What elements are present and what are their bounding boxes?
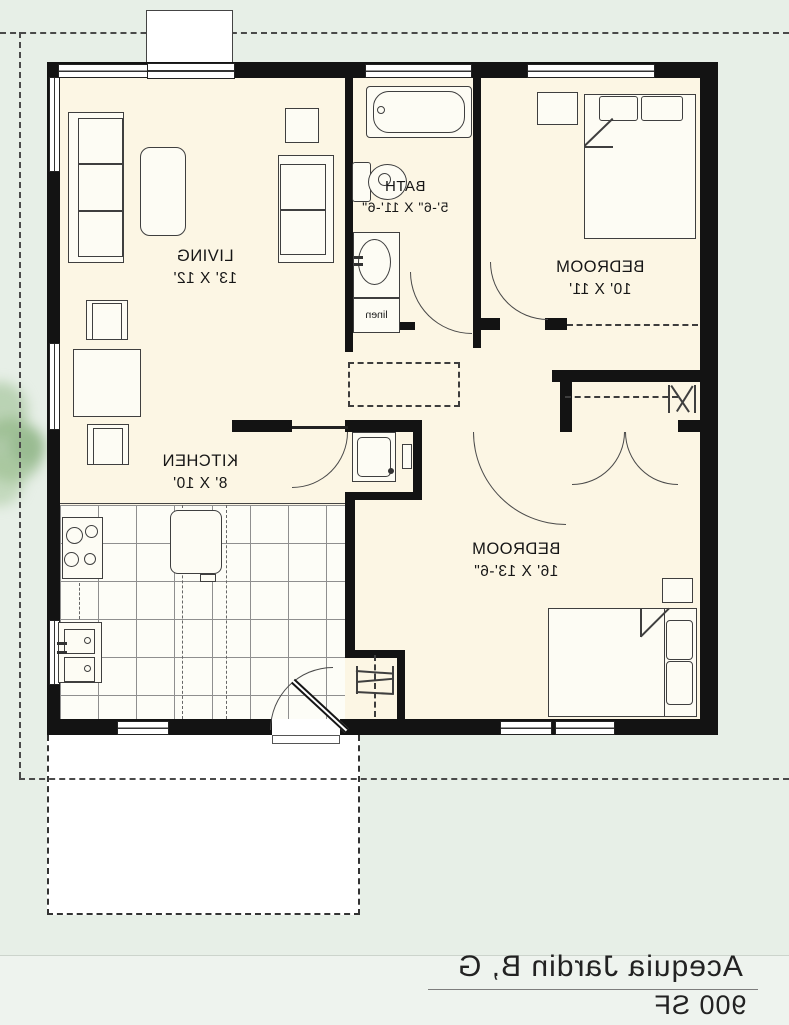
room-name: LIVING xyxy=(125,247,285,266)
window xyxy=(555,721,615,735)
nightstand xyxy=(662,578,693,603)
closet-hatch xyxy=(694,385,696,413)
room-dims: 13' X 12' xyxy=(125,270,285,288)
coffee-table xyxy=(140,147,186,236)
linen-label: linen xyxy=(353,309,400,321)
kitchen-door-step xyxy=(272,735,340,744)
vanity-faucet xyxy=(354,263,363,266)
pillow xyxy=(641,96,683,121)
blanket-fold-line xyxy=(584,146,613,148)
stoop xyxy=(146,10,233,64)
room-dims: 16' X 13'-6" xyxy=(436,563,596,581)
stove-burner xyxy=(85,525,98,538)
pillow xyxy=(666,661,693,705)
stove-burner xyxy=(66,527,83,544)
kitchen-counter-dashed xyxy=(226,505,227,719)
window xyxy=(365,64,472,78)
site-plan: LIVING 13' X 12' BATH 5'-6" X 11'-6" BED… xyxy=(0,0,789,1024)
stove-burner xyxy=(64,552,79,567)
wall-utility-top xyxy=(345,420,422,432)
vanity-faucet xyxy=(354,256,363,259)
room-name: KITCHEN xyxy=(120,452,280,471)
sink-faucet xyxy=(57,642,67,645)
bathtub-drain xyxy=(377,106,385,114)
wall-pantry-east xyxy=(397,650,405,721)
bed xyxy=(548,608,666,717)
window xyxy=(49,77,60,172)
sink-drain xyxy=(84,637,91,644)
pantry-dashed-line xyxy=(374,655,376,717)
dining-chair-seat xyxy=(92,303,122,340)
wall-utility-bottom xyxy=(345,492,422,500)
front-door-threshold xyxy=(147,63,235,79)
room-label-bedroom2: BEDROOM 16' X 13'-6" xyxy=(436,540,596,581)
stove-burner xyxy=(84,553,96,565)
wall-bath-west xyxy=(345,78,353,352)
plan-area: 900 SF xyxy=(600,990,789,1021)
stove xyxy=(62,517,103,579)
vanity-sink xyxy=(358,239,391,285)
tree-blob xyxy=(10,428,46,464)
wall-exterior-right xyxy=(700,62,718,735)
room-dims: 8' X 10' xyxy=(120,475,280,493)
sink-drain xyxy=(84,665,91,672)
pillow xyxy=(666,620,693,660)
sink-faucet xyxy=(57,651,67,654)
property-line-left xyxy=(19,32,21,778)
property-line-lower xyxy=(19,778,789,780)
window xyxy=(58,64,149,78)
room-label-living: LIVING 13' X 12' xyxy=(125,247,285,288)
room-name: BEDROOM xyxy=(436,540,596,559)
closet-hatch xyxy=(668,385,670,413)
dining-chair-seat xyxy=(93,428,123,465)
property-line-top xyxy=(0,32,789,34)
bathtub-basin xyxy=(373,91,465,133)
window xyxy=(500,721,552,735)
sofa-cushion-divider xyxy=(78,163,123,165)
loveseat-cushion-divider xyxy=(280,209,326,211)
room-dims: 10' X 11' xyxy=(520,281,680,299)
kitchen-island xyxy=(170,510,222,574)
blanket-fold-line xyxy=(640,608,642,637)
room-label-bedroom1: BEDROOM 10' X 11' xyxy=(520,258,680,299)
room-name: BATH xyxy=(345,178,465,195)
wall-kitchen-east xyxy=(345,500,355,652)
water-heater-inner xyxy=(357,437,391,477)
pantry-hatch xyxy=(392,666,394,694)
sofa-cushions xyxy=(78,118,123,257)
side-table xyxy=(285,108,319,143)
window xyxy=(49,343,60,430)
water-heater-valve xyxy=(388,468,394,474)
patio xyxy=(47,735,360,915)
room-name: BEDROOM xyxy=(520,258,680,277)
wall-segment xyxy=(481,318,500,330)
window xyxy=(117,721,169,735)
utility-panel xyxy=(402,444,412,469)
kitchen-counter-dashed xyxy=(79,583,80,619)
plan-title: Acequia Jardin B, G xyxy=(420,950,780,984)
wall-segment xyxy=(560,420,572,432)
wall-bath-east xyxy=(473,78,481,348)
room-dims: 5'-6" X 11'-6" xyxy=(345,199,465,215)
kitchen-counter-line xyxy=(60,503,345,504)
wall-utility-east xyxy=(413,420,422,500)
window xyxy=(527,64,655,78)
room-label-kitchen: KITCHEN 8' X 10' xyxy=(120,452,280,493)
wall-hall-kitchen xyxy=(232,420,292,432)
room-label-bath: BATH 5'-6" X 11'-6" xyxy=(345,178,465,215)
wall-segment xyxy=(678,420,703,432)
pillow xyxy=(599,96,638,121)
wall-segment xyxy=(545,318,567,330)
attic-access-dashed xyxy=(348,362,460,407)
closet-line-bedroom1 xyxy=(567,324,698,326)
wall-closet-mid xyxy=(552,370,703,382)
closet-shelf-line xyxy=(565,396,678,398)
nightstand xyxy=(537,92,578,125)
island-stool xyxy=(200,574,216,582)
door-leaf-utility xyxy=(292,426,348,429)
sofa-cushion-divider xyxy=(78,210,123,212)
dining-table xyxy=(73,349,141,417)
